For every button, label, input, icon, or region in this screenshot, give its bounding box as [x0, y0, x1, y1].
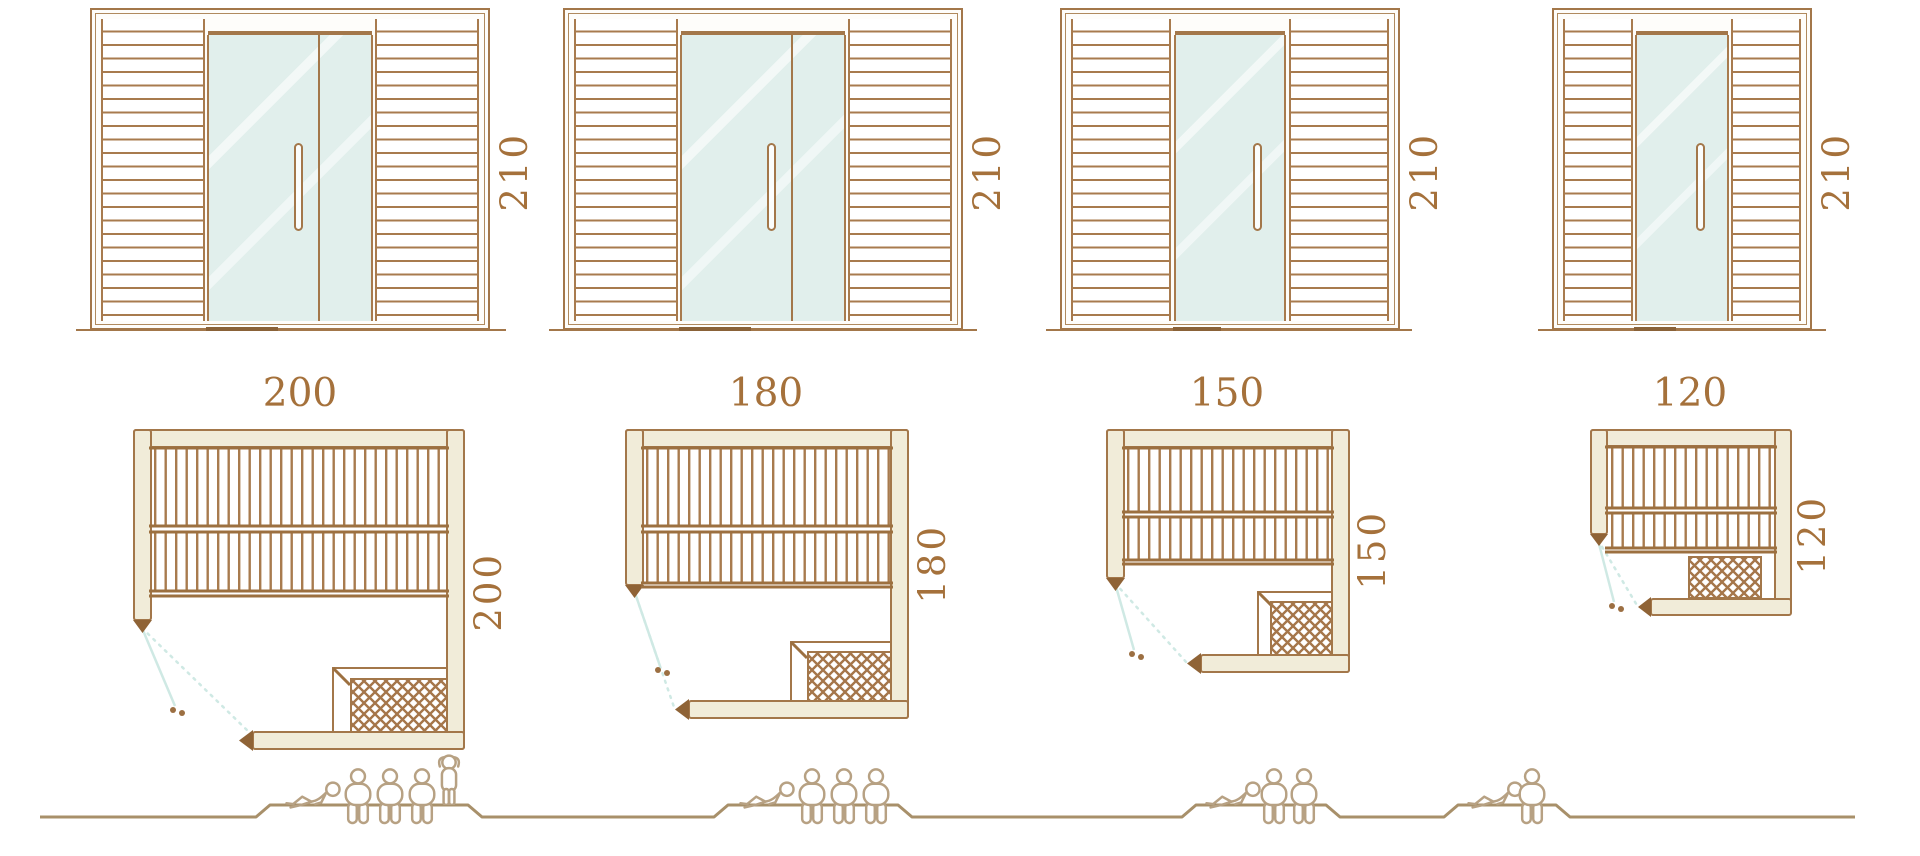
wall-top: [1591, 430, 1791, 446]
plan-width-label-200: 200: [240, 374, 360, 413]
plan-width-label-120: 120: [1630, 374, 1750, 413]
bench-lower: [1124, 517, 1332, 560]
front-elevation-180: [563, 8, 963, 330]
bench-upper: [1124, 448, 1332, 512]
door-handle-dot: [170, 707, 176, 713]
person-seated-icon: [1262, 769, 1287, 823]
wood-wall-left: [1563, 19, 1633, 321]
door-handle-dot: [1618, 606, 1624, 612]
door-pane-divider: [318, 35, 320, 321]
front-elevation-150: [1060, 8, 1400, 330]
person-seated-icon: [1292, 769, 1317, 823]
floor-plan-150: [1106, 428, 1350, 728]
person-seated-icon: [800, 769, 825, 823]
glass-door-double: [207, 19, 373, 321]
glass-pane: [1635, 35, 1729, 321]
door-threshold: [1173, 327, 1221, 331]
door-handle: [767, 143, 776, 231]
bench-lower: [151, 532, 447, 591]
door-handle: [294, 143, 303, 231]
wall-left: [626, 430, 643, 585]
wall-left: [134, 430, 151, 620]
heater: [808, 652, 891, 701]
bench-upper: [643, 448, 891, 526]
glass-pane: [680, 35, 846, 321]
wall-right: [447, 430, 464, 749]
height-label-150: 210: [1406, 132, 1443, 212]
wall-right: [1332, 430, 1349, 672]
bench-upper: [151, 448, 447, 526]
wall-left: [1591, 430, 1607, 534]
wall-bottom: [1201, 655, 1349, 672]
ground-line: [1538, 329, 1826, 331]
bench-lower: [643, 532, 891, 583]
door-frame-top: [1636, 19, 1728, 35]
wall-right: [891, 430, 908, 718]
height-label-200: 210: [496, 132, 533, 212]
door-handle-dot: [179, 710, 185, 716]
person-standing-icon: [439, 756, 459, 805]
wall-bottom: [689, 701, 908, 718]
door-open-line: [1115, 583, 1134, 650]
wall-bottom: [1651, 599, 1791, 615]
door-handle-dot: [1129, 651, 1135, 657]
door-frame-top: [1175, 19, 1285, 35]
wall-left: [1107, 430, 1124, 578]
door-pivot: [1590, 534, 1608, 546]
door-threshold: [1634, 327, 1676, 331]
height-label-180: 210: [969, 132, 1006, 212]
door-stop-arrow: [675, 699, 689, 720]
ground-line: [76, 329, 506, 331]
floor-plan-120: [1590, 428, 1792, 688]
wood-wall-left: [1071, 19, 1171, 321]
plan-depth-label-150: 150: [1354, 510, 1391, 590]
door-frame-top: [681, 19, 845, 35]
door-handle-dot: [655, 667, 661, 673]
door-handle-dot: [1138, 654, 1144, 660]
door-handle: [1696, 143, 1705, 231]
wood-wall-right: [848, 19, 952, 321]
wood-wall-right: [1289, 19, 1389, 321]
glass-pane: [207, 35, 373, 321]
door-swing-line: [142, 628, 251, 734]
front-elevation-120: [1552, 8, 1812, 330]
wall-top: [1107, 430, 1349, 447]
plan-width-label-180: 180: [706, 374, 826, 413]
wall-top: [134, 430, 464, 447]
front-elevation-200: [90, 8, 490, 330]
sauna-size-diagram: 210 210 210: [0, 0, 1920, 856]
floor-plan-180: [625, 428, 909, 758]
door-frame-top: [208, 19, 372, 35]
door-pivot: [133, 620, 152, 633]
plan-depth-label-200: 200: [470, 552, 507, 632]
bench-upper: [1607, 447, 1775, 508]
heater: [1271, 602, 1332, 655]
door-handle-dot: [664, 670, 670, 676]
door-pivot: [1106, 578, 1125, 591]
height-label-120: 210: [1818, 132, 1855, 212]
person-seated-icon: [410, 769, 435, 823]
door-stop-arrow: [1187, 653, 1201, 674]
heater: [1689, 557, 1761, 598]
person-seated-icon: [864, 769, 889, 823]
door-swing-line: [634, 590, 675, 710]
door-threshold: [679, 327, 751, 331]
ground-line: [1046, 329, 1412, 331]
door-stop-arrow: [1638, 597, 1651, 617]
ground-profile-line: [40, 805, 1855, 817]
door-open-line: [142, 628, 175, 706]
door-swing-line: [1598, 540, 1638, 607]
glass-door-single: [1635, 19, 1729, 321]
person-seated-icon: [346, 769, 371, 823]
plan-depth-label-120: 120: [1794, 495, 1831, 575]
person-seated-icon: [832, 769, 857, 823]
wood-wall-right: [375, 19, 479, 321]
door-pane-divider: [791, 35, 793, 321]
door-handle: [1253, 143, 1262, 231]
glass-pane: [1174, 35, 1286, 321]
ground-line: [549, 329, 977, 331]
wall-top: [626, 430, 908, 447]
glass-door-single: [1174, 19, 1286, 321]
door-handle-dot: [1609, 603, 1615, 609]
bench-lower: [1607, 513, 1775, 548]
wall-right: [1775, 430, 1791, 614]
wood-wall-right: [1731, 19, 1801, 321]
wood-wall-left: [101, 19, 205, 321]
capacity-strip: [0, 720, 1920, 856]
plan-width-label-150: 150: [1167, 374, 1287, 413]
wood-wall-left: [574, 19, 678, 321]
glass-door-double: [680, 19, 846, 321]
person-seated-icon: [378, 769, 403, 823]
plan-depth-label-180: 180: [914, 524, 951, 604]
person-seated-icon: [1520, 769, 1545, 823]
door-threshold: [206, 327, 278, 331]
